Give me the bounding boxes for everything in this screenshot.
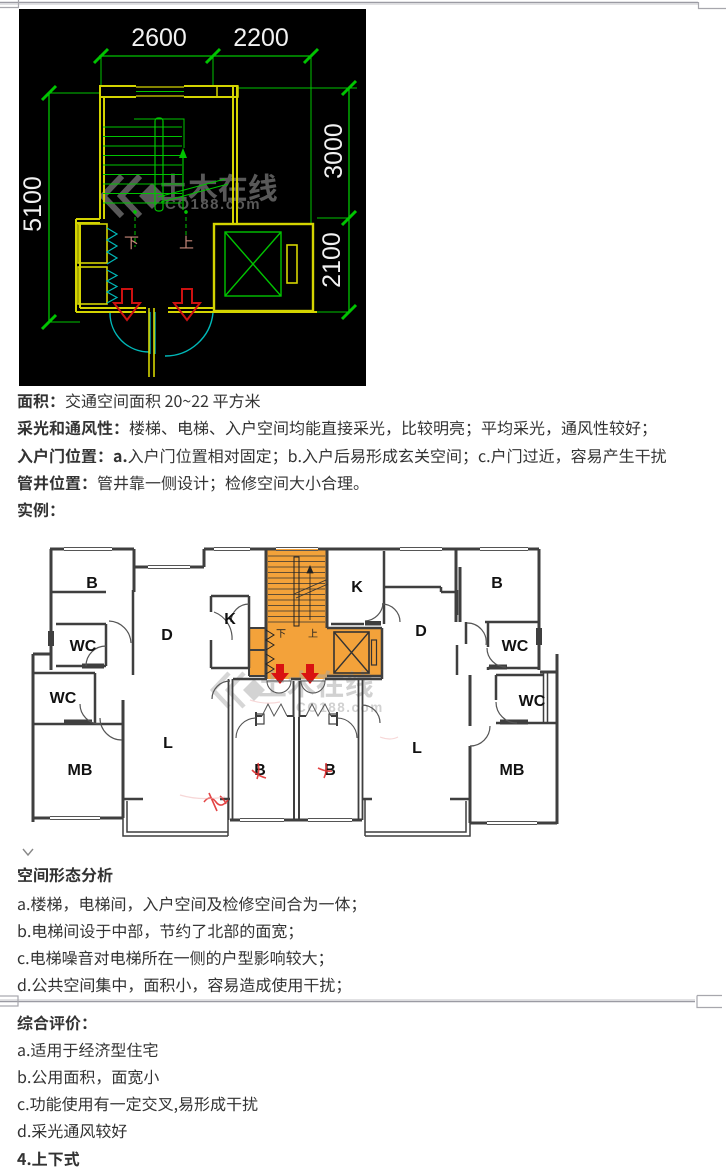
- svg-text:D: D: [161, 627, 173, 644]
- svg-text:D: D: [415, 623, 427, 640]
- svg-text:K: K: [224, 611, 236, 628]
- svg-text:L: L: [163, 735, 173, 752]
- svg-text:L: L: [412, 740, 422, 757]
- svg-text:MB: MB: [500, 762, 525, 779]
- svg-text:MB: MB: [68, 762, 93, 779]
- svg-text:B: B: [491, 575, 503, 592]
- svg-text:K: K: [351, 579, 363, 596]
- svg-text:WC: WC: [519, 693, 546, 710]
- svg-text:B: B: [86, 575, 98, 592]
- svg-text:WC: WC: [50, 690, 77, 707]
- svg-text:WC: WC: [502, 638, 529, 655]
- svg-text:WC: WC: [70, 638, 97, 655]
